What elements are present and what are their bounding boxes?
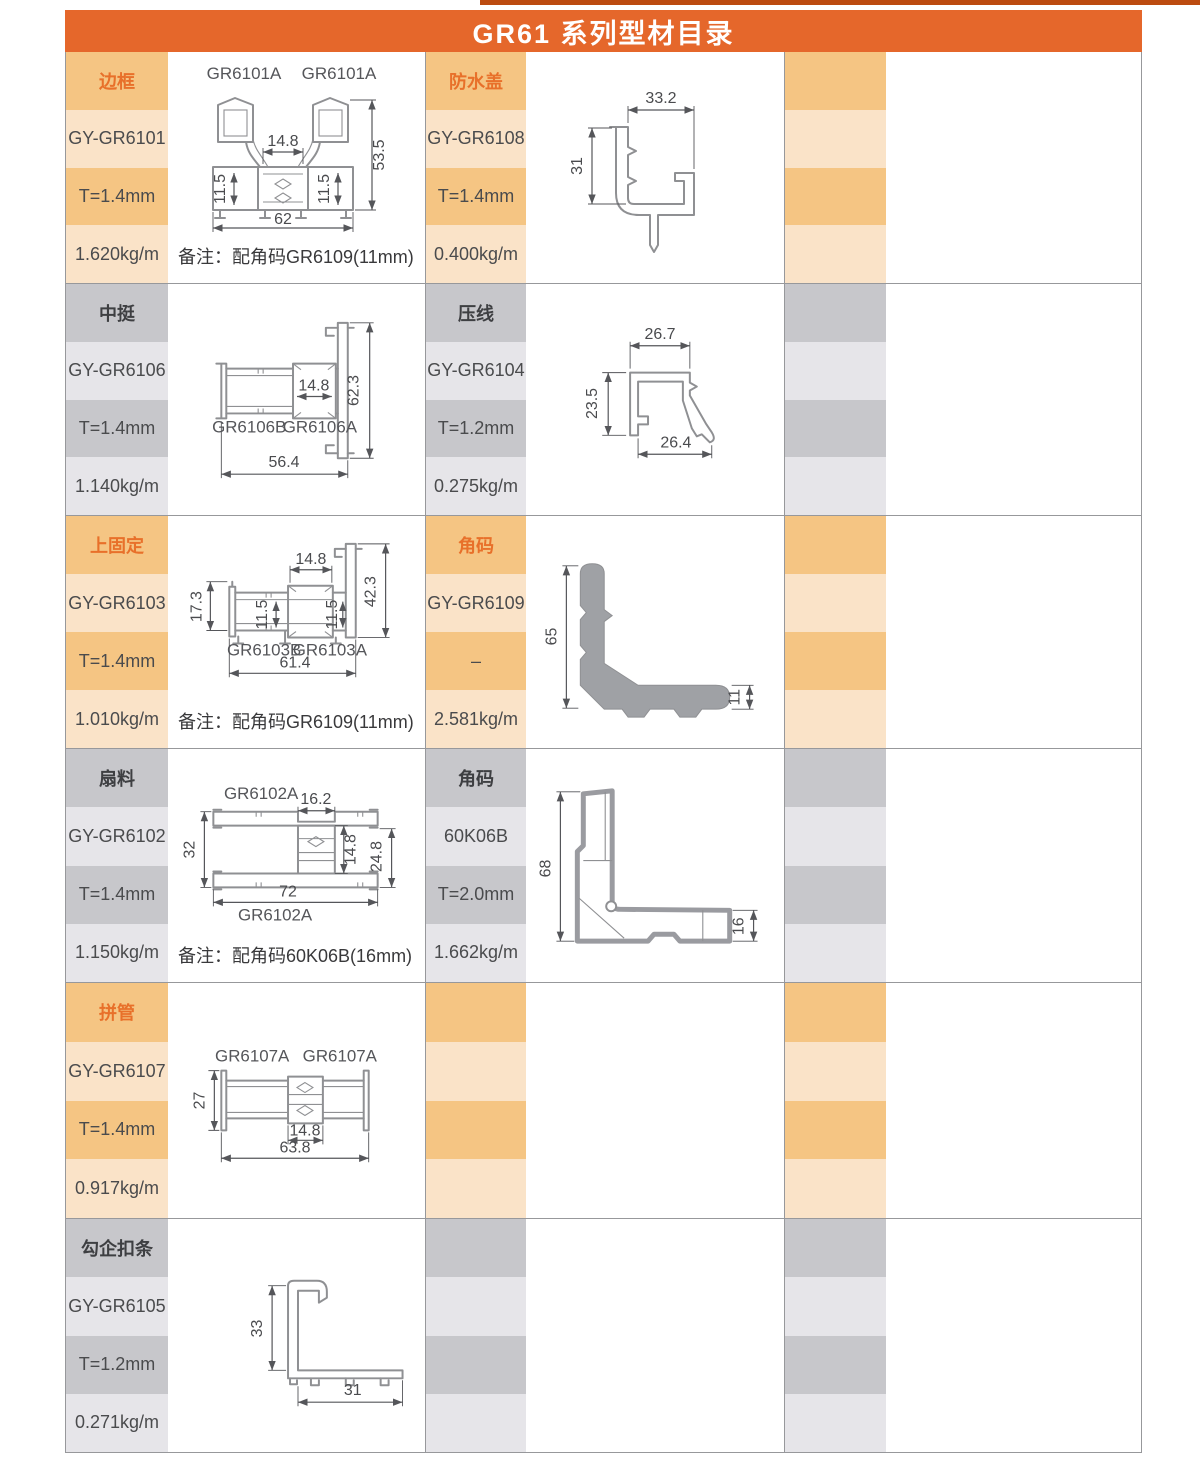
part-label: GR6106A — [283, 417, 358, 436]
dim-26-4: 26.4 — [660, 434, 691, 451]
thickness: T=1.2mm — [426, 400, 526, 458]
thickness: T=1.2mm — [66, 1336, 168, 1394]
dimensions: 14.8 53.5 11.5 11.5 62 GR6101A — [207, 64, 388, 232]
dim-62-3: 62.3 — [346, 375, 363, 406]
dim-24-8: 24.8 — [369, 841, 386, 872]
weight: 1.010kg/m — [66, 690, 168, 748]
drawing-empty — [526, 1219, 784, 1452]
dim-11-5-right: 11.5 — [324, 600, 341, 630]
note: 备注：配角码GR6109(11mm) — [178, 243, 414, 269]
part-label: GR6102A — [238, 905, 313, 924]
part-label: GR6106B — [212, 417, 286, 436]
weight: 1.150kg/m — [66, 924, 168, 982]
dim-63-8: 63.8 — [280, 1139, 311, 1156]
profile-drawing-60k06b-corner: 68 16 — [526, 749, 784, 982]
drawing-gr6105: 33 31 — [168, 1219, 425, 1452]
label-col-jiaoMa-60k06b: 角码 60K06B T=2.0mm 1.662kg/m — [425, 749, 526, 982]
table-body: 边框 GY-GR6101 T=1.4mm 1.620kg/m — [65, 52, 1142, 1453]
profile-name: 边框 — [66, 52, 168, 110]
product-code: GY-GR6107 — [66, 1042, 168, 1101]
dimensions: 16.2 32 14.8 24.8 72 — [181, 784, 395, 924]
thickness: T=1.4mm — [426, 168, 526, 226]
dim-11-5-left: 11.5 — [254, 600, 271, 630]
dimensions: 68 16 — [537, 792, 757, 941]
dim-14-8: 14.8 — [298, 378, 329, 395]
profile-outline — [630, 373, 714, 443]
thickness: T=1.4mm — [66, 1101, 168, 1160]
dim-11-5-left: 11.5 — [212, 174, 229, 204]
weight: 2.581kg/m — [426, 690, 526, 748]
profile-drawing-gr6109-corner: 65 11 — [526, 516, 784, 748]
page-top-edge-strip — [480, 0, 1200, 5]
dim-62: 62 — [274, 211, 292, 228]
dim-17-3: 17.3 — [188, 591, 205, 622]
part-label: GR6103B — [227, 640, 301, 659]
product-code: GY-GR6104 — [426, 342, 526, 400]
label-col-zhongTing: 中挺 GY-GR6106 T=1.4mm 1.140kg/m — [66, 284, 168, 515]
drawing-gr6106: 14.8 62.3 56.4 GR6106B GR6106A — [168, 284, 425, 515]
dim-16-2: 16.2 — [300, 791, 331, 808]
weight: 0.400kg/m — [426, 225, 526, 283]
profile-outline — [216, 323, 353, 458]
table-row: 上固定 GY-GR6103 T=1.4mm 1.010kg/m — [66, 515, 1141, 748]
profile-name: 上固定 — [66, 516, 168, 574]
profile-drawing-gr6107: 27 14.8 63.8 GR6107A GR6107A — [168, 983, 425, 1218]
label-col-empty — [784, 516, 886, 748]
table-row: 边框 GY-GR6101 T=1.4mm 1.620kg/m — [66, 52, 1141, 283]
dim-65: 65 — [543, 627, 560, 645]
dim-31: 31 — [569, 157, 586, 175]
profile-name: 压线 — [426, 284, 526, 342]
dim-33: 33 — [249, 1320, 266, 1338]
weight: 0.271kg/m — [66, 1394, 168, 1452]
thickness: T=1.4mm — [66, 400, 168, 458]
dim-33-2: 33.2 — [645, 90, 676, 107]
dim-42-3: 42.3 — [363, 576, 380, 607]
label-col-empty — [784, 983, 886, 1218]
dim-72: 72 — [279, 883, 297, 900]
product-code: GY-GR6103 — [66, 574, 168, 632]
product-code: GY-GR6109 — [426, 574, 526, 632]
label-col-bianKuang: 边框 GY-GR6101 T=1.4mm 1.620kg/m — [66, 52, 168, 283]
dim-68: 68 — [537, 859, 554, 877]
dim-11-5-right: 11.5 — [316, 174, 333, 204]
drawing-gr6107: 27 14.8 63.8 GR6107A GR6107A — [168, 983, 425, 1218]
part-label: GR6101A — [302, 64, 377, 83]
drawing-empty — [886, 749, 1141, 982]
dim-32: 32 — [181, 841, 198, 859]
drawing-empty — [886, 516, 1141, 748]
part-label: GR6107A — [303, 1047, 378, 1066]
label-col-jiaoMa-6109: 角码 GY-GR6109 – 2.581kg/m — [425, 516, 526, 748]
profile-name: 角码 — [426, 749, 526, 807]
profile-outline — [577, 791, 729, 941]
table-row: 勾企扣条 GY-GR6105 T=1.2mm 0.271kg/m — [66, 1218, 1141, 1452]
thickness: T=1.4mm — [66, 168, 168, 226]
weight: 0.917kg/m — [66, 1159, 168, 1218]
profile-name: 防水盖 — [426, 52, 526, 110]
label-col-pinGuan: 拼管 GY-GR6107 T=1.4mm 0.917kg/m — [66, 983, 168, 1218]
label-col-empty — [784, 284, 886, 515]
label-col-shanLiao: 扇料 GY-GR6102 T=1.4mm 1.150kg/m — [66, 749, 168, 982]
table-row: 中挺 GY-GR6106 T=1.4mm 1.140kg/m — [66, 283, 1141, 515]
profile-drawing-gr6108: 33.2 31 — [526, 52, 784, 283]
profile-outline — [610, 127, 694, 252]
dim-11: 11 — [727, 689, 744, 706]
label-col-shangGuDing: 上固定 GY-GR6103 T=1.4mm 1.010kg/m — [66, 516, 168, 748]
weight: 0.275kg/m — [426, 457, 526, 515]
dim-31: 31 — [344, 1382, 362, 1399]
thickness: T=1.4mm — [66, 866, 168, 924]
catalog-table: GR61 系列型材目录 边框 GY-GR6101 T=1.4mm 1.620kg… — [65, 10, 1142, 1453]
profile-drawing-gr6105: 33 31 — [168, 1219, 425, 1452]
product-code: GY-GR6106 — [66, 342, 168, 400]
label-col-empty — [784, 52, 886, 283]
profile-outline — [288, 1281, 403, 1386]
dimensions: 33.2 31 — [569, 90, 694, 204]
note: 备注：配角码GR6109(11mm) — [178, 708, 414, 734]
profile-drawing-gr6104: 26.7 23.5 26.4 — [526, 284, 784, 515]
label-col-gouQiKouTiao: 勾企扣条 GY-GR6105 T=1.2mm 0.271kg/m — [66, 1219, 168, 1452]
part-label: GR6101A — [207, 64, 282, 83]
profile-drawing-gr6106: 14.8 62.3 56.4 GR6106B GR6106A — [168, 284, 425, 515]
dimensions: 33 31 — [249, 1286, 402, 1406]
label-col-fangShuiGai: 防水盖 GY-GR6108 T=1.4mm 0.400kg/m — [425, 52, 526, 283]
profile-name: 拼管 — [66, 983, 168, 1042]
product-code: GY-GR6108 — [426, 110, 526, 168]
thickness: T=2.0mm — [426, 866, 526, 924]
label-col-empty — [425, 1219, 526, 1452]
dim-53-5: 53.5 — [371, 139, 388, 170]
table-row: 拼管 GY-GR6107 T=1.4mm 0.917kg/m — [66, 982, 1141, 1218]
weight: 1.662kg/m — [426, 924, 526, 982]
drawing-gr6101: 14.8 53.5 11.5 11.5 62 GR6101A — [168, 52, 425, 283]
drawing-empty — [886, 284, 1141, 515]
product-code: GY-GR6101 — [66, 110, 168, 168]
part-label: GR6107A — [215, 1047, 290, 1066]
label-col-empty — [784, 749, 886, 982]
dim-27: 27 — [191, 1092, 208, 1110]
drawing-empty — [886, 52, 1141, 283]
table-row: 扇料 GY-GR6102 T=1.4mm 1.150kg/m — [66, 748, 1141, 982]
drawing-gr6103: 14.8 42.3 17.3 11.5 11.5 — [168, 516, 425, 748]
thickness: T=1.4mm — [66, 632, 168, 690]
label-col-empty — [425, 983, 526, 1218]
dim-26-7: 26.7 — [644, 326, 675, 343]
drawing-gr6109-corner: 65 11 — [526, 516, 784, 748]
dim-56-4: 56.4 — [269, 454, 300, 471]
drawing-empty — [526, 983, 784, 1218]
thickness: – — [426, 632, 526, 690]
product-code: GY-GR6105 — [66, 1277, 168, 1335]
page-title: GR61 系列型材目录 — [65, 10, 1142, 52]
drawing-60k06b-corner: 68 16 — [526, 749, 784, 982]
drawing-empty — [886, 983, 1141, 1218]
profile-name: 角码 — [426, 516, 526, 574]
dimensions: 27 14.8 63.8 GR6107A GR6107A — [191, 1047, 377, 1163]
dim-14-8: 14.8 — [343, 834, 360, 865]
dim-14-8: 14.8 — [267, 133, 298, 150]
dimensions: 26.7 23.5 26.4 — [584, 326, 712, 458]
label-col-empty — [784, 1219, 886, 1452]
dim-14-8: 14.8 — [289, 1122, 320, 1139]
drawing-empty — [886, 1219, 1141, 1452]
part-label: GR6102A — [224, 784, 299, 803]
weight: 1.620kg/m — [66, 225, 168, 283]
weight: 1.140kg/m — [66, 457, 168, 515]
profile-name: 勾企扣条 — [66, 1219, 168, 1277]
part-label: GR6103A — [293, 640, 368, 659]
dim-14-8: 14.8 — [295, 551, 326, 568]
profile-name: 中挺 — [66, 284, 168, 342]
dim-23-5: 23.5 — [584, 388, 601, 419]
note: 备注：配角码60K06B(16mm) — [178, 942, 412, 968]
product-code: GY-GR6102 — [66, 807, 168, 865]
dim-16: 16 — [731, 917, 748, 935]
drawing-gr6102: 16.2 32 14.8 24.8 72 — [168, 749, 425, 982]
profile-name: 扇料 — [66, 749, 168, 807]
profile-solid — [580, 564, 729, 717]
product-code: 60K06B — [426, 807, 526, 865]
label-col-yaXian: 压线 GY-GR6104 T=1.2mm 0.275kg/m — [425, 284, 526, 515]
drawing-gr6108: 33.2 31 — [526, 52, 784, 283]
drawing-gr6104: 26.7 23.5 26.4 — [526, 284, 784, 515]
catalog-page: GR61 系列型材目录 边框 GY-GR6101 T=1.4mm 1.620kg… — [0, 0, 1200, 1469]
